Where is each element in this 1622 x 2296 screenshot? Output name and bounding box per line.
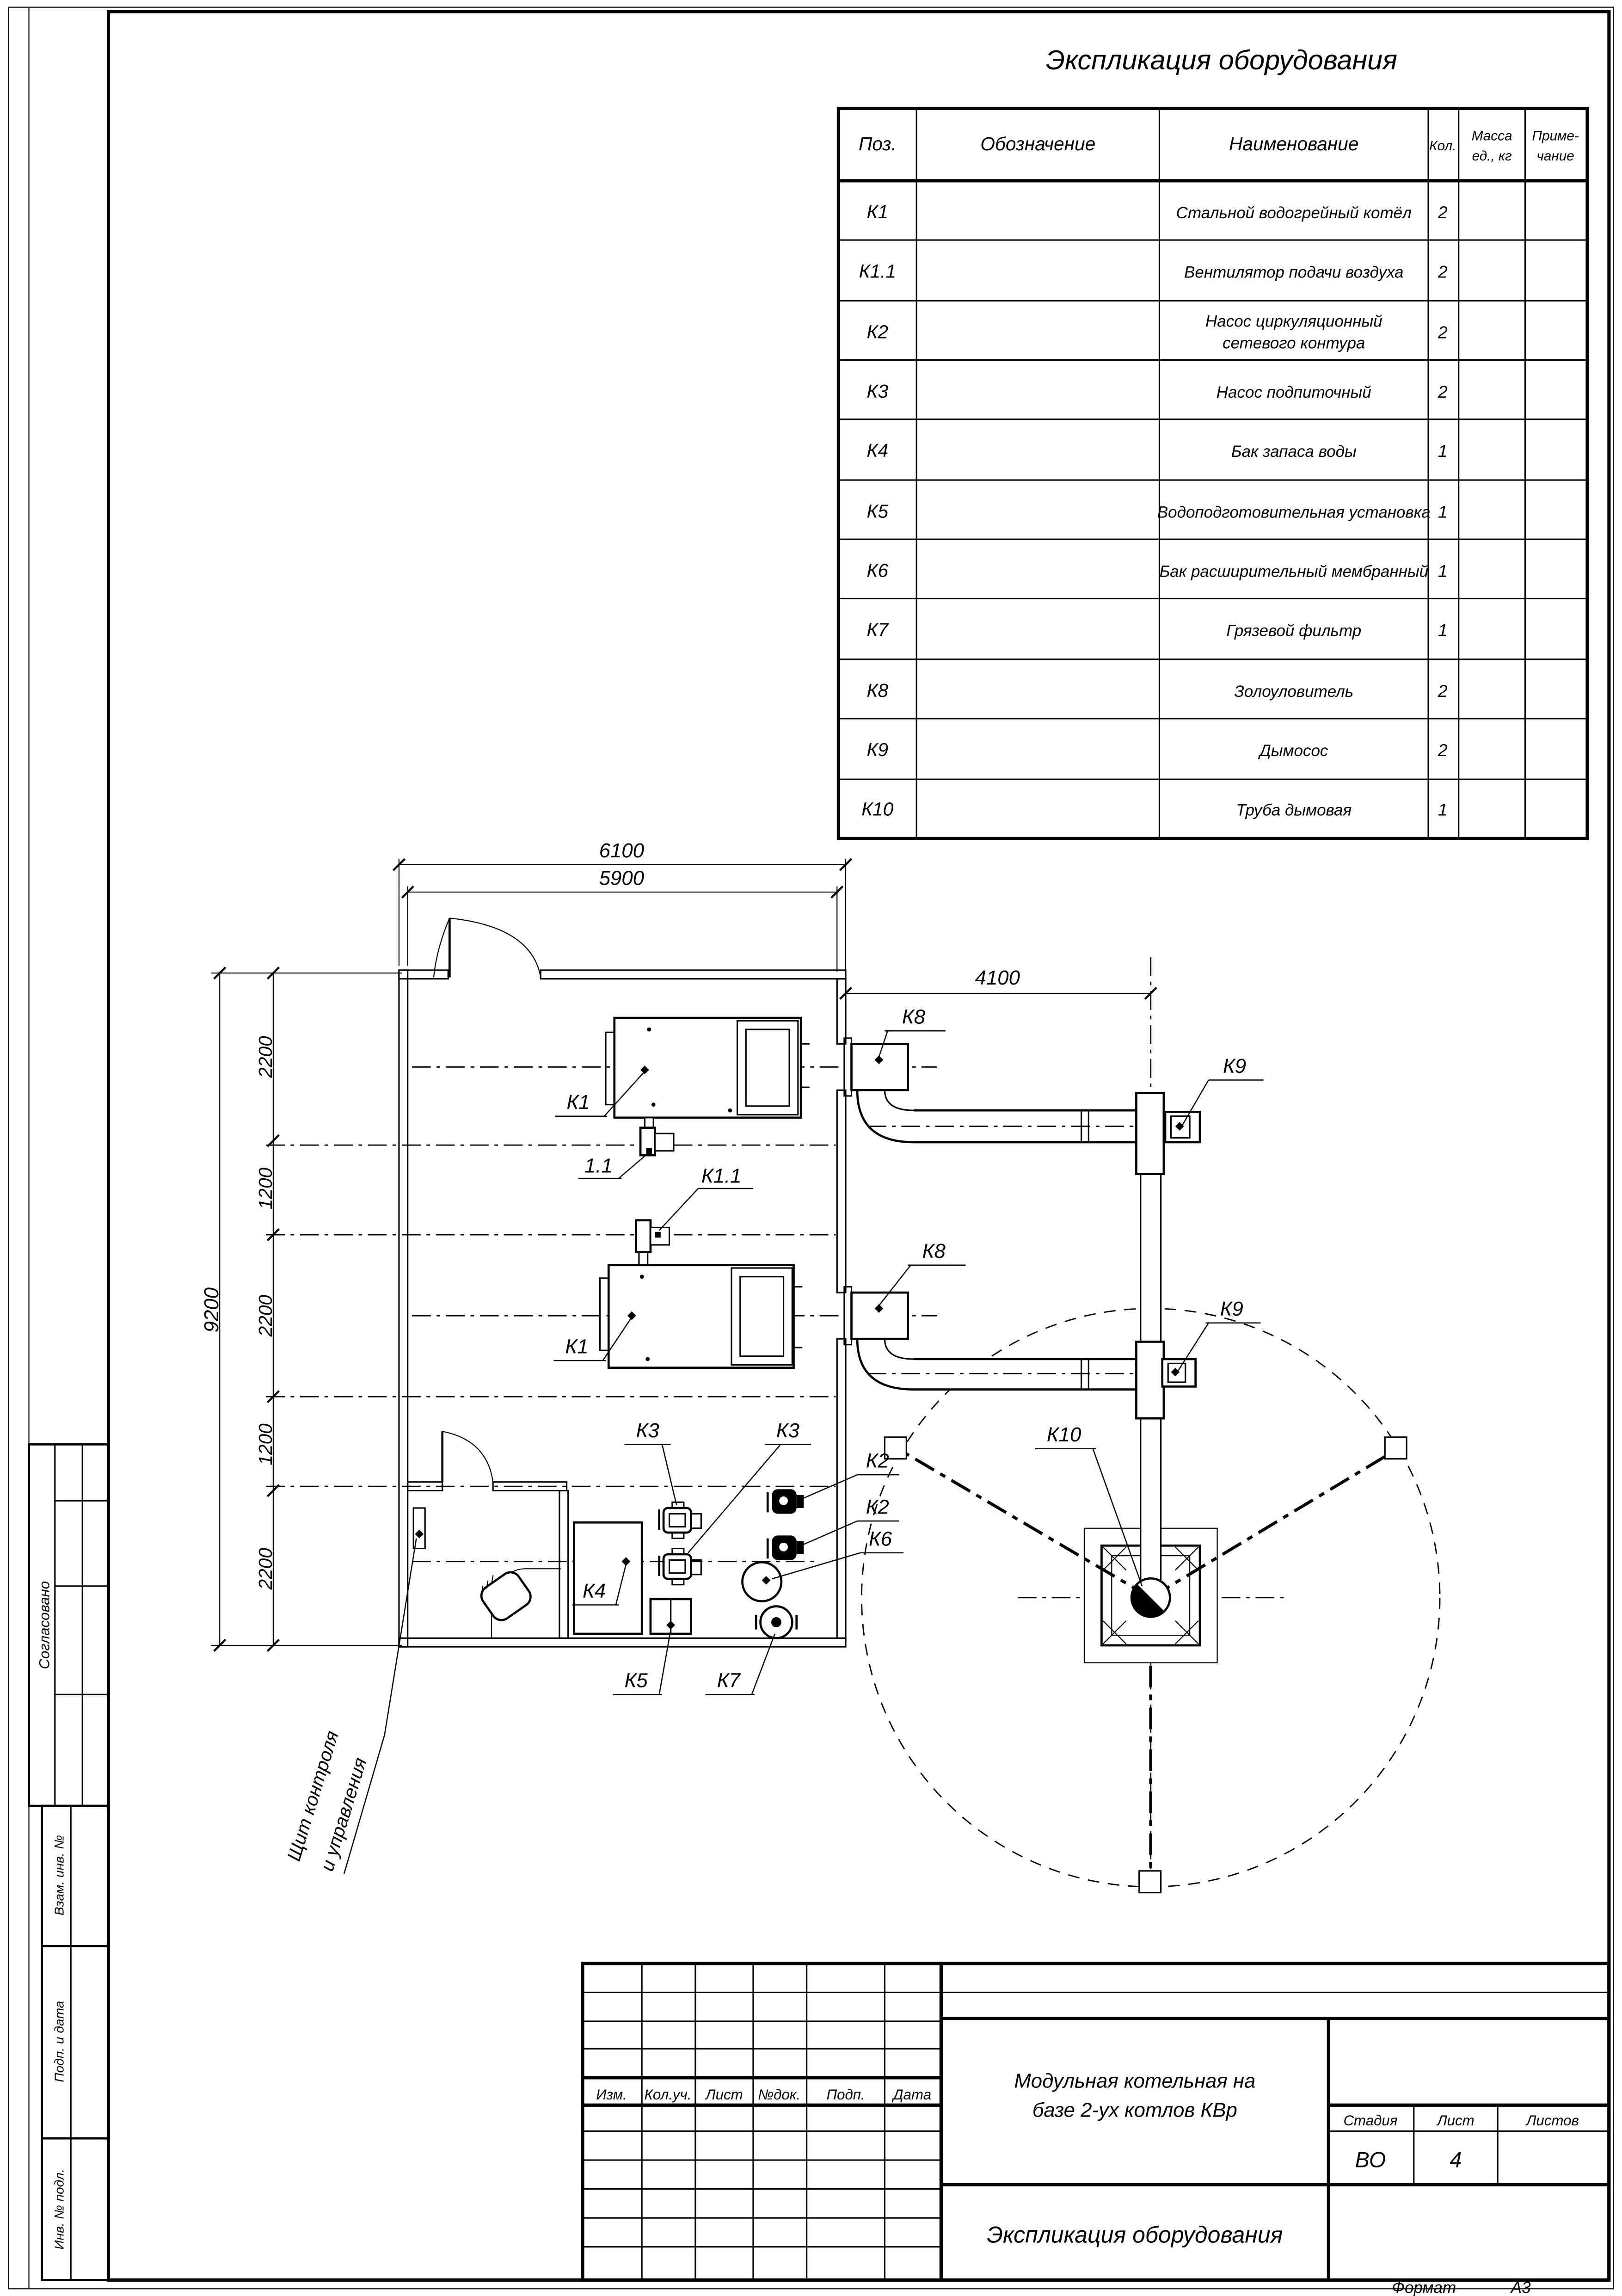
table-row: К6 Бак расширительный мембранный 1 xyxy=(867,560,1448,581)
format-label: Формат xyxy=(1392,2279,1456,2296)
label-k6: К6 xyxy=(869,1527,892,1550)
stage-value: ВО xyxy=(1355,2148,1386,2172)
sheet-label: Лист xyxy=(1436,2112,1474,2129)
approved-block: Согласовано xyxy=(29,1444,109,1806)
label-control-panel: Щит контроля и управления xyxy=(283,1539,417,1874)
header-qty: Кол. xyxy=(1429,138,1456,154)
row6-name: Бак расширительный мембранный xyxy=(1159,562,1428,580)
table-title: Экспликация оборудования xyxy=(1046,44,1397,75)
dim-9200: 9200 xyxy=(200,1287,223,1332)
water-tank-k4 xyxy=(574,1522,642,1634)
row1-name: Вентилятор подачи воздуха xyxy=(1184,263,1404,281)
flue-junction-bottom xyxy=(1136,1342,1163,1418)
inv-podl-label: Инв. № подл. xyxy=(52,2169,67,2250)
table-row: К7 Грязевой фильтр 1 xyxy=(867,619,1448,640)
guy-wire-right xyxy=(1151,1449,1398,1598)
row4-qty: 1 xyxy=(1438,441,1448,461)
row8-name: Золоуловитель xyxy=(1234,683,1353,701)
left-stamp-column: Согласовано Взам. инв. № Подп. и дата Ин… xyxy=(29,1444,109,2280)
row8-pos: К8 xyxy=(867,680,889,701)
table-row: К5 Водоподготовительная установка 1 xyxy=(867,500,1448,522)
label-fan-top: 1.1 xyxy=(584,1155,613,1177)
rev-podp: Подп. xyxy=(826,2087,865,2103)
expansion-tank-k6 xyxy=(742,1562,781,1601)
boiler-top xyxy=(606,1018,810,1155)
title-main: Модульная котельная на базе 2-ух котлов … xyxy=(941,1992,1609,2280)
sheets-label: Листов xyxy=(1525,2112,1579,2129)
rev-koluch: Кол.уч. xyxy=(645,2087,692,2103)
table-row: К3 Насос подпиточный 2 xyxy=(867,381,1448,402)
air-fan-bottom xyxy=(636,1220,670,1265)
zam-inv-label: Взам. инв. № xyxy=(52,1835,67,1915)
label-k1-top: К1 xyxy=(567,1091,590,1114)
pump-k3-1 xyxy=(659,1502,701,1538)
pump-k2-2 xyxy=(768,1535,804,1560)
rev-list: Лист xyxy=(705,2087,743,2103)
flue-tract xyxy=(844,1038,1200,1617)
pump-k3-2 xyxy=(659,1549,701,1585)
smoke-exhauster-top xyxy=(1165,1112,1200,1142)
label-k10: К10 xyxy=(1047,1423,1081,1446)
project-title-1: Модульная котельная на xyxy=(1014,2070,1255,2093)
equipment-table: Экспликация оборудования Поз. Обозначени… xyxy=(838,44,1587,838)
header-mass-2: ед., кг xyxy=(1472,148,1512,164)
row1-pos: К1.1 xyxy=(859,260,896,282)
label-k3-b: К3 xyxy=(776,1419,799,1442)
doc-name: Экспликация оборудования xyxy=(987,2222,1283,2247)
row2-qty: 2 xyxy=(1438,323,1448,342)
dim-seg5: 2200 xyxy=(255,1548,276,1590)
row7-name: Грязевой фильтр xyxy=(1226,622,1361,640)
drawing-sheet: Согласовано Взам. инв. № Подп. и дата Ин… xyxy=(0,0,1622,2296)
row0-name: Стальной водогрейный котёл xyxy=(1176,204,1412,222)
guy-anchor-right xyxy=(1385,1437,1407,1459)
smoke-exhauster-bottom xyxy=(1162,1359,1196,1386)
label-k9-top: К9 xyxy=(1223,1055,1246,1077)
exterior-door xyxy=(434,918,541,977)
water-treatment-k5 xyxy=(651,1599,691,1634)
table-row: К8 Золоуловитель 2 xyxy=(867,680,1448,701)
boiler-bottom xyxy=(600,1220,803,1368)
row8-qty: 2 xyxy=(1438,681,1448,701)
label-k4: К4 xyxy=(583,1580,606,1602)
label-k1-bottom: К1 xyxy=(565,1335,588,1358)
dim-seg2: 1200 xyxy=(255,1167,276,1209)
header-pos: Поз. xyxy=(859,133,897,154)
label-k2-a: К2 xyxy=(866,1449,889,1472)
header-designation: Обозначение xyxy=(980,133,1095,154)
row0-pos: К1 xyxy=(867,201,889,222)
ash-catcher-top xyxy=(852,1044,908,1090)
table-header: Поз. Обозначение Наименование Кол. Масса… xyxy=(859,128,1579,164)
label-k8-bottom: К8 xyxy=(922,1240,946,1262)
label-k2-b: К2 xyxy=(866,1496,889,1519)
row9-qty: 2 xyxy=(1438,740,1448,760)
row7-pos: К7 xyxy=(867,619,889,640)
header-note-2: чание xyxy=(1537,148,1574,164)
sheet-frame xyxy=(9,7,1613,2289)
sheet-value: 4 xyxy=(1450,2148,1462,2172)
dim-seg1: 2200 xyxy=(255,1036,276,1078)
row5-name: Водоподготовительная установка xyxy=(1157,503,1431,521)
label-k3-a: К3 xyxy=(636,1419,659,1442)
row5-pos: К5 xyxy=(867,500,889,522)
mud-filter-k7 xyxy=(756,1607,797,1638)
row6-pos: К6 xyxy=(867,560,889,581)
floor-plan: 6100 5900 4100 9200 2200 1200 2200 1200 … xyxy=(200,839,1440,1893)
label-k5: К5 xyxy=(625,1669,648,1692)
header-note-1: Приме- xyxy=(1532,128,1579,143)
table-row: К10 Труба дымовая 1 xyxy=(861,798,1447,819)
row5-qty: 1 xyxy=(1438,502,1448,521)
row9-name: Дымосос xyxy=(1258,742,1328,760)
row2-name2: сетевого контура xyxy=(1223,334,1365,352)
row9-pos: К9 xyxy=(867,739,889,760)
row7-qty: 1 xyxy=(1438,621,1448,640)
flue-duct-top xyxy=(844,1038,1200,1174)
row4-name: Бак запаса воды xyxy=(1231,443,1357,461)
row3-qty: 2 xyxy=(1438,382,1448,401)
row10-qty: 1 xyxy=(1438,800,1448,819)
inv-podl-block: Инв. № подл. xyxy=(42,2138,109,2280)
dim-6100: 6100 xyxy=(599,839,644,862)
label-fan-bottom: К1.1 xyxy=(701,1165,742,1188)
sanitary-unit xyxy=(474,1563,561,1638)
row10-pos: К10 xyxy=(861,798,894,819)
table-row: К1 Стальной водогрейный котёл 2 xyxy=(867,201,1448,222)
table-row: К1.1 Вентилятор подачи воздуха 2 xyxy=(859,260,1448,282)
rev-ndok: №док. xyxy=(758,2087,800,2103)
row2-pos: К2 xyxy=(867,321,889,343)
rev-izm: Изм. xyxy=(596,2087,627,2103)
dim-5900: 5900 xyxy=(599,867,644,889)
guy-wire-left xyxy=(898,1449,1151,1598)
row0-qty: 2 xyxy=(1438,203,1448,222)
dim-seg4: 1200 xyxy=(255,1423,276,1465)
label-k7: К7 xyxy=(717,1669,741,1692)
approved-label: Согласовано xyxy=(36,1581,52,1669)
label-k8-top: К8 xyxy=(902,1006,926,1028)
label-k9-bottom: К9 xyxy=(1220,1298,1243,1320)
row3-pos: К3 xyxy=(867,381,889,402)
row10-name: Труба дымовая xyxy=(1236,801,1352,819)
rev-data: Дата xyxy=(892,2087,931,2103)
row3-name: Насос подпиточный xyxy=(1216,383,1371,401)
interior-door xyxy=(442,1431,493,1482)
row1-qty: 2 xyxy=(1438,262,1448,281)
stage-label: Стадия xyxy=(1343,2112,1397,2129)
dim-seg3: 2200 xyxy=(255,1295,276,1337)
podp-data-label: Подп. и дата xyxy=(52,2001,67,2082)
table-row: К4 Бак запаса воды 1 xyxy=(867,440,1448,461)
dim-4100: 4100 xyxy=(975,966,1020,989)
plan-axes xyxy=(266,1067,937,1561)
air-fan-top xyxy=(640,1118,674,1155)
header-name: Наименование xyxy=(1229,133,1358,154)
guy-anchor-bottom xyxy=(1139,1871,1161,1893)
header-mass-1: Масса xyxy=(1472,128,1512,143)
ash-catcher-bottom xyxy=(852,1293,908,1339)
chimney-pipe xyxy=(1131,1578,1170,1617)
project-title-2: базе 2-ух котлов КВр xyxy=(1032,2099,1237,2121)
row4-pos: К4 xyxy=(867,440,889,461)
flue-junction-top xyxy=(1136,1093,1163,1174)
table-row: К2 Насос циркуляционный сетевого контура… xyxy=(867,313,1448,352)
row2-name1: Насос циркуляционный xyxy=(1205,313,1382,331)
revision-grid: Изм. Кол.уч. Лист №док. Подп. Дата xyxy=(583,1964,941,2280)
pump-k2-1 xyxy=(768,1489,804,1514)
row6-qty: 1 xyxy=(1438,561,1448,580)
zam-inv-block: Взам. инв. № xyxy=(42,1806,109,1946)
podp-data-block: Подп. и дата xyxy=(42,1946,109,2138)
table-row: К9 Дымосос 2 xyxy=(867,739,1448,760)
format-value: А3 xyxy=(1510,2279,1531,2296)
title-block: Изм. Кол.уч. Лист №док. Подп. Дата Модул… xyxy=(583,1964,1609,2296)
